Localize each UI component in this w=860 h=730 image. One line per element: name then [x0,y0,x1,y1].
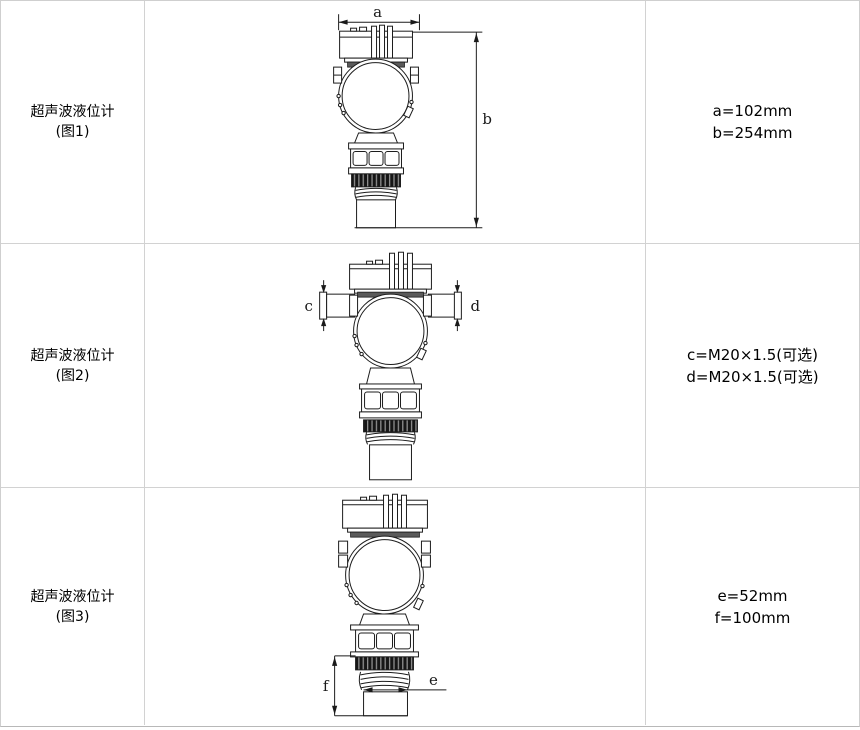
dim-marker-d: d [471,297,481,315]
cap-rib [393,494,398,528]
housing-clip-right [421,541,430,553]
sensor-housing [334,59,419,133]
process-connection [360,368,422,480]
dimension-cell-fig1: a=102mm b=254mm [646,1,859,244]
device-name: 超声波液位计 [31,587,115,607]
process-connection [349,132,404,227]
housing-clip-left [339,555,348,567]
drawing-cell-fig1: a [145,1,646,244]
device-drawing-fig1: a [145,1,645,244]
dim-marker-e: e [429,671,438,689]
device-name: 超声波液位计 [31,102,115,122]
spec-table: 超声波液位计 (图1) a [0,0,860,727]
cap-screw [370,496,377,500]
display-cap [340,25,413,58]
figure-number: (图2) [31,366,115,386]
device-drawing-fig3: f e [145,488,645,725]
dimension-value: d=M20×1.5(可选) [686,366,818,388]
cap-rib [380,25,385,58]
cap-rib [398,252,403,289]
dimension-value: a=102mm [713,100,793,122]
thread-section [355,187,398,199]
label-cell-fig3: 超声波液位计 (图3) [1,488,145,725]
cap-rib [388,26,393,58]
cable-gland-right [428,292,461,319]
dim-marker-a: a [373,3,382,21]
dimension-values-fig3: e=52mm f=100mm [715,585,791,629]
transducer-horn [357,199,396,227]
thread-section [359,672,409,690]
dimension-value: c=M20×1.5(可选) [686,344,818,366]
dim-marker-b: b [482,109,492,127]
dimension-value: e=52mm [715,585,791,607]
device-label-fig1: 超声波液位计 (图1) [31,102,115,142]
display-cap [350,252,432,289]
sensor-housing [350,294,432,368]
cap-rib [372,26,377,58]
cap-screw [376,260,383,264]
cap-screw [351,28,357,31]
figure-number: (图1) [31,122,115,142]
device-label-fig3: 超声波液位计 (图3) [31,587,115,627]
dim-marker-c: c [304,297,312,315]
process-connection [351,614,419,716]
cap-rib [390,253,395,289]
drawing-cell-fig2: c d [145,244,646,488]
housing-clip-left [339,541,348,553]
transducer-horn [364,692,408,716]
knurled-ring [352,173,401,186]
label-cell-fig2: 超声波液位计 (图2) [1,244,145,488]
label-cell-fig1: 超声波液位计 (图1) [1,1,145,244]
dim-marker-f: f [323,677,330,695]
device-label-fig2: 超声波液位计 (图2) [31,346,115,386]
device-name: 超声波液位计 [31,346,115,366]
knurled-ring [356,657,414,670]
dimension-value: f=100mm [715,607,791,629]
housing-clip-right [421,555,430,567]
cap-screw [361,497,367,500]
housing-clip-left [350,295,358,316]
knurled-ring [364,420,418,432]
dimension-value: b=254mm [713,122,793,144]
dimension-cell-fig3: e=52mm f=100mm [646,488,859,725]
dimension-values-fig2: c=M20×1.5(可选) d=M20×1.5(可选) [686,344,818,388]
thread-section [366,432,416,444]
cap-rib [401,495,406,528]
sensor-housing [339,536,431,614]
transducer-horn [370,445,412,480]
dimension-cell-fig2: c=M20×1.5(可选) d=M20×1.5(可选) [646,244,859,488]
device-drawing-fig2: c d [145,244,645,487]
cap-screw [367,261,373,264]
figure-number: (图3) [31,607,115,627]
dimension-values-fig1: a=102mm b=254mm [713,100,793,144]
cap-rib [407,253,412,289]
cap-rib [384,495,389,528]
housing-clip-right [423,295,431,316]
display-cap [343,494,428,528]
drawing-cell-fig3: f e [145,488,646,725]
cap-screw [360,27,367,31]
